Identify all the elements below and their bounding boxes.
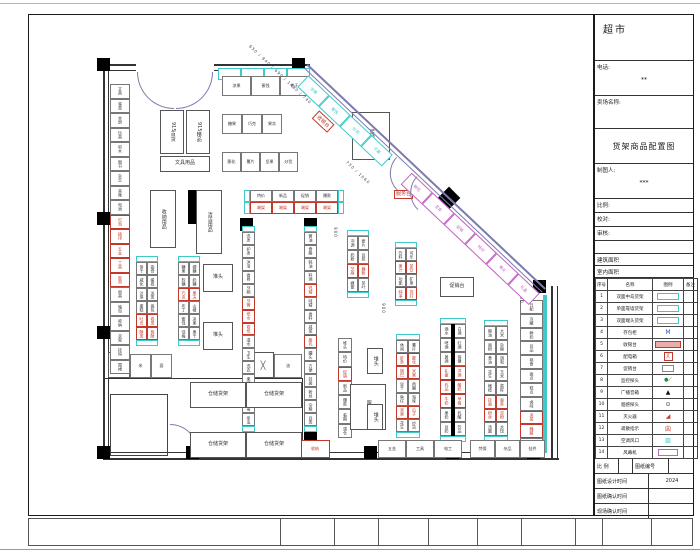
confirm-time-row: 图纸确认时间 — [595, 489, 693, 504]
review-label: 审核: — [597, 229, 610, 237]
confirm-time-label: 图纸确认时间 — [595, 489, 649, 503]
shelf-cell: 端架 — [294, 202, 316, 214]
shelf-cell: 糕点 — [520, 383, 543, 397]
shelf-cell: 洗衣 — [242, 361, 255, 374]
shelf-cell: 茶叶 — [358, 278, 369, 292]
wall — [557, 286, 558, 460]
shelf-cell: 爆款 — [316, 190, 338, 202]
shelf-cell: 桃酥 — [147, 327, 158, 340]
shelf-cell: 酱油 — [304, 232, 317, 245]
legend-name: 风幕机 — [608, 447, 653, 459]
legend-symbol: ▨ — [653, 435, 684, 447]
footer-strip-cell — [522, 518, 576, 546]
shelf-cell: 食油 — [484, 354, 496, 368]
gondola-endcap — [178, 340, 200, 346]
shelf-cell: 胶带 — [110, 273, 130, 288]
site-confirm-row: 现场确认时间 — [595, 504, 693, 518]
shelf-cell: 腐乳 — [304, 335, 317, 348]
shelf-cell: 果冻 — [189, 288, 200, 301]
legend-note — [684, 375, 698, 387]
shelf-cell: 蜜饯 — [251, 76, 280, 96]
shelf-cell: 派类 — [147, 288, 158, 301]
shelf-cell: 酥类 — [136, 327, 147, 340]
fixture-block: 堆头 — [367, 348, 383, 374]
door-arc — [176, 72, 213, 109]
shelf-cell: 茶饮 — [406, 261, 417, 274]
legend-num: 13 — [596, 435, 608, 447]
shelf-cell: 五金 — [110, 244, 130, 259]
shelf-cell: 杂品 — [495, 440, 520, 458]
shelf-cell: 炒货 — [279, 152, 298, 172]
gondola-endcap — [395, 300, 417, 306]
shelf-row: 米面 — [130, 354, 172, 378]
legend-name: 广播音箱 — [608, 387, 653, 399]
shelf-cell: 面 — [151, 354, 172, 378]
phone-value: ** — [595, 76, 693, 83]
shelf-cell: 工具 — [406, 440, 434, 458]
shelf-cell: 巧克 — [242, 114, 262, 134]
legend-row: 6配电箱╳ — [596, 351, 698, 363]
fixture-block: 堆头 — [203, 322, 233, 350]
fixture-block: 仓储货架 — [246, 382, 302, 408]
legend-header-cell: 图例 — [653, 279, 684, 291]
legend-note — [684, 351, 698, 363]
legend-row: 4存包柜M — [596, 327, 698, 339]
shelf-cell: 咸菜 — [304, 323, 317, 336]
legend-num: 6 — [596, 351, 608, 363]
shelf-cell: 纸巾 — [242, 310, 255, 323]
shelf-cell: 山楂 — [189, 301, 200, 314]
shelf-cell: 吐司 — [136, 314, 147, 327]
gondola-run: 休闲薯片虾条膨化锅巴米果豆干肉脯鱼仔海味坚果瓜子花生炒货 — [396, 334, 420, 438]
m-blue-icon: M — [665, 329, 670, 336]
phone-label: 电话: — [597, 63, 610, 71]
shelf-row: 劳保杂品挂件 — [470, 440, 545, 458]
shelf-row: 膨化薯片坚果炒货 — [222, 152, 298, 172]
shelf-row: 特价新品促销爆款 — [244, 190, 344, 202]
design-time-label: 图纸设计时间 — [595, 474, 649, 488]
shelf-cell: 沐浴 — [242, 258, 255, 271]
structural-column — [97, 446, 110, 459]
crossed-box: ╳ — [252, 352, 274, 378]
gondola-run: 饼干曲奇威化蛋卷沙琪派类蛋糕面包吐司卷类酥类桃酥 — [136, 256, 158, 346]
shelf-cell: 挂面 — [304, 374, 317, 387]
shelf-cell: 凉菜 — [520, 411, 543, 425]
cone-icon: ▲ — [666, 389, 671, 396]
wall — [103, 64, 105, 460]
legend-row: 10烟感探头⊙ — [596, 399, 698, 411]
shelf-cell: 雨具 — [110, 287, 130, 302]
shelf-cell: 衣架 — [110, 331, 130, 346]
scale-number-row: 比 例 图纸编号 — [595, 459, 693, 474]
shelf-cell: 巧克 — [178, 288, 189, 301]
legend-num: 10 — [596, 399, 608, 411]
shelf-cell: 菜籽 — [496, 381, 508, 395]
legend-name: 疏散指示 — [608, 423, 653, 435]
shelf-cell: 香皂 — [242, 271, 255, 284]
shelf-cell: 藕粉 — [358, 264, 369, 278]
confirm-time-value — [649, 489, 693, 503]
shelf-cell: 饼干 — [136, 262, 147, 275]
shelf-cell: 蛋卷 — [147, 275, 158, 288]
legend-symbol — [653, 363, 684, 375]
office-room — [110, 394, 168, 456]
gondola-run: 冲调麦片奶粉豆浆芝麻藕粉蜂蜜茶叶 — [347, 230, 369, 298]
structural-column — [364, 446, 377, 459]
shelf-cell: 凉果 — [222, 76, 251, 96]
legend-num: 5 — [596, 339, 608, 351]
shelf-cell: 糖果 — [178, 262, 189, 275]
shelf-cell: 苏打 — [406, 287, 417, 300]
shelf-cell: 音像 — [110, 186, 130, 201]
footer-strip-cell — [652, 518, 693, 546]
legend-symbol: ▲ — [653, 387, 684, 399]
wall — [551, 286, 553, 460]
shelf-cell: 可乐 — [406, 248, 417, 261]
footer-strip-cell — [281, 518, 335, 546]
legend-name: 监控探头 — [608, 375, 653, 387]
legend-note — [684, 339, 698, 351]
title-block-drafter: 制图人: *** — [595, 164, 693, 199]
red-sign-icon: 囟 — [665, 424, 671, 433]
title-block: 超市 电话: ** 卖场名称: 货架商品配置图 制图人: *** 比例: 校对:… — [594, 14, 694, 516]
dimension-text: 900 — [381, 303, 386, 314]
shelf-cell: 淀粉 — [496, 409, 508, 423]
shelf-cell: 促销 — [338, 367, 352, 381]
scale-label: 比例: — [597, 201, 610, 209]
legend-name: 双面端头货架 — [608, 315, 653, 327]
scale-cell-label: 比 例 — [595, 459, 619, 473]
shelf-cell: 灯泡 — [110, 215, 130, 230]
shelf-cell: 卫生 — [242, 348, 255, 361]
shelf-cell: 蜂蜜 — [347, 278, 358, 292]
shelf-cell: 炒货 — [408, 419, 420, 432]
shelf-cell: 油 — [274, 354, 302, 378]
shelf-cell: 鱼仔 — [396, 393, 408, 406]
shelf-row: 糖果巧克果冻 — [222, 114, 282, 134]
shelf-cell: 味精 — [304, 297, 317, 310]
shelf-cell: 牙刷 — [242, 284, 255, 297]
fixture-block: 仓储货架 — [190, 382, 246, 408]
title-block-scale: 比例: — [595, 199, 693, 213]
shelf-cell: 沙琪 — [136, 288, 147, 301]
shelf-row: 端架端架端架端架 — [244, 202, 344, 214]
gray-rect-icon — [662, 365, 674, 372]
shelf-cell: 文具 — [110, 84, 130, 99]
fixture-block: 仓储货架 — [246, 432, 302, 458]
shelf-cell: 米 — [130, 354, 151, 378]
title-block-building-area: 建筑面积 — [595, 254, 693, 266]
shelf-cell: 挂面 — [484, 395, 496, 409]
legend-note — [684, 447, 698, 459]
footer-strip — [28, 518, 693, 546]
shelf-cell: 奶粉 — [347, 250, 358, 264]
site-confirm-value — [649, 504, 693, 518]
legend-symbol: ◢ — [653, 411, 684, 423]
red-wedge-icon: ◢ — [666, 413, 671, 420]
shelf-cell: 豆干 — [396, 379, 408, 392]
shelf-cell: 虾条 — [396, 353, 408, 366]
legend-note — [684, 387, 698, 399]
shelf-cell: 劳保 — [470, 440, 495, 458]
shelf-cell: 奶糖 — [189, 275, 200, 288]
gondola-run: 饮料可乐果汁茶饮功能矿泉纯净苏打 — [395, 242, 417, 306]
legend-symbol: ⊙ — [653, 399, 684, 411]
shelf-cell: 面包 — [147, 301, 158, 314]
shelf-cell: 牙膏 — [242, 297, 255, 310]
shelf-cell: 凉果 — [189, 314, 200, 327]
shelf-cell: 鲜奶 — [520, 328, 543, 342]
shelf-cell: 豆品 — [520, 341, 543, 355]
shelf-cell: 面点 — [520, 369, 543, 383]
shelf-cell: 花生 — [484, 367, 496, 381]
shelf-cell: 糖果 — [222, 114, 242, 134]
legend-name: 配电箱 — [608, 351, 653, 363]
legend-symbol: 囟 — [653, 423, 684, 435]
gondola-run: 酱油食醋蚝油料酒鸡精味精香料咸菜腐乳罐头方便挂面粉丝杂粮豆类 — [304, 226, 317, 432]
footer-strip-cell — [603, 518, 652, 546]
run-divider — [451, 324, 455, 436]
shelf-cell: 促销 — [294, 190, 316, 202]
page: ╳╳文具笔类本册玩具积木图书杂志音像电池灯泡插排五金工具胶带雨具箱包收纳衣架挂钩… — [0, 0, 700, 555]
legend-name: 存包柜 — [608, 327, 653, 339]
legend-note — [684, 291, 698, 303]
legend-num: 8 — [596, 375, 608, 387]
legend-name: 单面靠墙货架 — [608, 303, 653, 315]
wall — [103, 378, 303, 379]
legend-row: 3双面端头货架 — [596, 315, 698, 327]
shelf-cell: 鸡精 — [304, 284, 317, 297]
legend-num: 4 — [596, 327, 608, 339]
shelf-cell: 坚果 — [396, 406, 408, 419]
fixture-block: 堆头 — [367, 404, 383, 430]
legend-note — [684, 315, 698, 327]
shelf-cell: 薯片 — [241, 152, 260, 172]
shelf-cell: 海味 — [408, 393, 420, 406]
shelf-cell: 收纳 — [300, 440, 330, 458]
fixture-block: 915百货 — [160, 110, 184, 154]
legend-symbol — [653, 447, 684, 459]
shelf-cell: 腌腊 — [520, 424, 543, 438]
shelf-cell: 芝麻 — [347, 264, 358, 278]
magenta-rect-icon — [658, 449, 678, 456]
shelf-cell: 端架 — [316, 202, 338, 214]
shelf-cell: 方便 — [304, 361, 317, 374]
shelf-cell: 话梅 — [178, 327, 189, 340]
structural-column — [97, 212, 110, 225]
footer-strip-cell — [335, 518, 379, 546]
shelf-cell: 工具 — [110, 258, 130, 273]
title-block-store-type: 超市 — [595, 15, 693, 61]
sheet-number-value — [669, 459, 693, 473]
gondola-run: 糖果硬糖软糖奶糖巧克果冻布丁山楂蜜饯凉果话梅果干 — [178, 256, 200, 346]
shelf-cell: 豆类 — [304, 413, 317, 426]
legend-name: 烟感探头 — [608, 399, 653, 411]
gondola-run: 文具笔类本册玩具积木图书杂志音像电池灯泡插排五金工具胶带雨具箱包收纳衣架挂钩围裙 — [110, 84, 130, 374]
legend-note — [684, 435, 698, 447]
legend-num: 7 — [596, 363, 608, 375]
shelf-cell: 电工 — [434, 440, 462, 458]
legend-num: 1 — [596, 291, 608, 303]
green-dot-icon: ●⟋ — [664, 377, 672, 383]
shelf-cell: 积木 — [110, 142, 130, 157]
legend-name: 灭火器 — [608, 411, 653, 423]
shelf-cell: 湿巾 — [242, 335, 255, 348]
legend-note — [684, 303, 698, 315]
shelf-cell: 食醋 — [304, 245, 317, 258]
title-block-indoor-area: 室内面积 — [595, 266, 693, 278]
shelf-cell: 曲奇 — [147, 262, 158, 275]
shelf-cell: 粉丝 — [484, 409, 496, 423]
footer-strip-cell — [478, 518, 522, 546]
shelf-cell: 新品 — [272, 190, 294, 202]
title-block-empty-row — [595, 241, 693, 254]
footer-strip-cell — [28, 518, 281, 546]
shelf-cell: 膨化 — [408, 353, 420, 366]
dimension-text: 900 — [333, 227, 338, 238]
fixture-block: 堆头 — [203, 264, 233, 292]
shelf-cell: 本册 — [110, 113, 130, 128]
red-box-icon: ╳ — [664, 352, 673, 361]
shelf-cell: 卷类 — [147, 314, 158, 327]
sheet-number-label: 图纸编号 — [633, 459, 669, 473]
legend-row: 9广播音箱▲ — [596, 387, 698, 399]
fixture-block: 清洁用品 — [196, 190, 222, 254]
shelf-cell: 膨化 — [222, 152, 241, 172]
legend-symbol — [653, 303, 684, 315]
shelf-cell: 饮料 — [395, 248, 406, 261]
footer-strip-cell — [429, 518, 478, 546]
circle-icon: ⊙ — [665, 401, 670, 408]
shelf-cell: 电池 — [110, 200, 130, 215]
shelf-cell: 罐头 — [304, 348, 317, 361]
diagonal-wall — [307, 64, 546, 290]
legend-note — [684, 399, 698, 411]
shelf-cell: 汤圆 — [484, 422, 496, 436]
legend-symbol: ╳ — [653, 351, 684, 363]
design-time-row: 图纸设计时间 2024 — [595, 474, 693, 489]
shelf-cell: 坚果 — [260, 152, 279, 172]
shelf-cell: 功能 — [395, 274, 406, 287]
shelf-endcap — [338, 202, 344, 214]
legend-row: 1双面中岛货架 — [596, 291, 698, 303]
shelf-cell: 麦片 — [358, 236, 369, 250]
shelf-cell: 杂粮 — [304, 400, 317, 413]
shelf-cell: 花生 — [396, 419, 408, 432]
shelf-cell: 五金 — [378, 440, 406, 458]
shelf-cell: 笔类 — [110, 99, 130, 114]
store-name-label: 卖场名称: — [597, 98, 621, 106]
title-block-store-name: 卖场名称: — [595, 96, 693, 129]
shelf-row: 五金工具电工 — [378, 440, 462, 458]
legend-num: 2 — [596, 303, 608, 315]
legend-name: 双面中岛货架 — [608, 291, 653, 303]
shelf-cell: 蛋糕 — [136, 301, 147, 314]
shelf-cell: 肉脯 — [408, 379, 420, 392]
shelf-cell: 玉米 — [496, 367, 508, 381]
legend-num: 11 — [596, 411, 608, 423]
gondola-endcap — [396, 432, 420, 438]
shelf-cell: 堆头 — [338, 338, 352, 352]
fixture-block: 收纳用品 — [150, 190, 176, 248]
shelf-cell: 特价 — [250, 190, 272, 202]
legend-table: 序号名称图例备注 1双面中岛货架2单面靠墙货架3双面端头货架4存包柜M5收银台6… — [595, 278, 698, 459]
wall — [103, 458, 559, 460]
legend-num: 12 — [596, 423, 608, 435]
legend-header-cell: 名称 — [608, 279, 653, 291]
legend-row: 14风幕机 — [596, 447, 698, 459]
legend-row: 8监控探头●⟋ — [596, 375, 698, 387]
scale-cell-value — [619, 459, 633, 473]
legend-symbol — [653, 315, 684, 327]
shelf-cell: 蜜饯 — [178, 314, 189, 327]
legend-row: 13空调风口▨ — [596, 435, 698, 447]
structural-column — [97, 58, 110, 71]
shelf-cell: 果干 — [189, 327, 200, 340]
footer-strip-cell — [379, 518, 429, 546]
legend-symbol — [653, 291, 684, 303]
legend-name: 促销台 — [608, 363, 653, 375]
gondola-run: 酒水白酒啤酒红酒黄酒保健礼盒洋酒乳品酸奶牛奶早餐果奶乳酸豆奶饮品 — [440, 318, 466, 442]
shelf-endcap — [338, 190, 344, 202]
diagonal-wall — [304, 68, 543, 293]
shelf-cell: 箱包 — [110, 302, 130, 317]
shelf-cell: 米果 — [408, 366, 420, 379]
fixture-block: 915精品 — [186, 110, 210, 154]
shelf-cell: 特价 — [338, 352, 352, 366]
cyan-rect-icon — [657, 305, 679, 312]
shelf-cell: 硬糖 — [189, 262, 200, 275]
legend-num: 9 — [596, 387, 608, 399]
title-block-check: 校对: — [595, 213, 693, 227]
shelf-cell: 收纳 — [110, 316, 130, 331]
legend-symbol: M — [653, 327, 684, 339]
shelf-cell: 薯片 — [408, 340, 420, 353]
shelf-cell: 豆浆 — [358, 250, 369, 264]
shelf-cell: 橄榄 — [484, 381, 496, 395]
shelf-cell: 香料 — [304, 310, 317, 323]
legend-note — [684, 423, 698, 435]
shelf-cell: 杂志 — [110, 171, 130, 186]
shelf-cell: 调和 — [496, 354, 508, 368]
legend-header-row: 序号名称图例备注 — [596, 279, 698, 291]
shelf-cell: 熟食 — [520, 355, 543, 369]
building-area-label: 建筑面积 — [597, 256, 619, 264]
design-time-value: 2024 — [649, 474, 693, 488]
shelf-cell: 护发 — [242, 245, 255, 258]
shelf-cell: 卤味 — [520, 397, 543, 411]
shelf-cell: 面粉 — [484, 340, 496, 354]
shelf-cell: 纯净 — [395, 287, 406, 300]
shelf-cell: 锅巴 — [396, 366, 408, 379]
legend-symbol — [653, 339, 684, 351]
drafter-value: *** — [595, 179, 693, 186]
legend-num: 14 — [596, 447, 608, 459]
shelf-cell: 洗发 — [242, 232, 255, 245]
shelf-cell: 威化 — [136, 275, 147, 288]
shelf-cell: 围裙 — [110, 360, 130, 375]
shelf-cell: 冷藏 — [520, 314, 543, 328]
cyan-rect-icon — [657, 293, 679, 300]
shelf-cell: 水饺 — [496, 422, 508, 436]
shelf-cell: 杂粮 — [496, 340, 508, 354]
red-bar-icon — [655, 341, 681, 348]
legend-row: 7促销台 — [596, 363, 698, 375]
legend-row: 11灭火器◢ — [596, 411, 698, 423]
legend-row: 5收银台 — [596, 339, 698, 351]
shelf-cell: 蚝油 — [304, 258, 317, 271]
gondola-endcap — [136, 340, 158, 346]
